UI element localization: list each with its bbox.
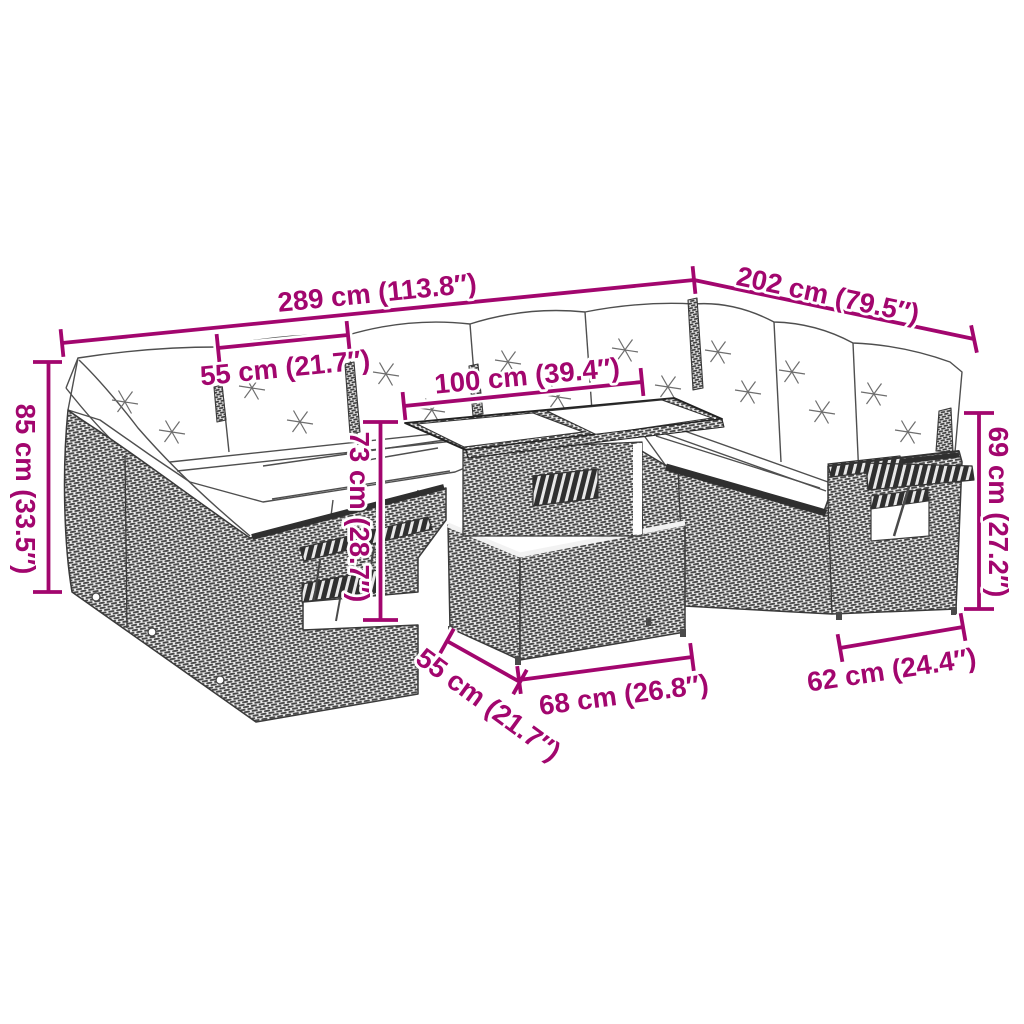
svg-text:62 cm (24.4″): 62 cm (24.4″) bbox=[805, 642, 978, 698]
svg-text:85 cm (33.5″): 85 cm (33.5″) bbox=[10, 404, 41, 575]
svg-text:69 cm (27.2″): 69 cm (27.2″) bbox=[983, 427, 1014, 598]
svg-text:73 cm (28.7″): 73 cm (28.7″) bbox=[344, 432, 375, 603]
